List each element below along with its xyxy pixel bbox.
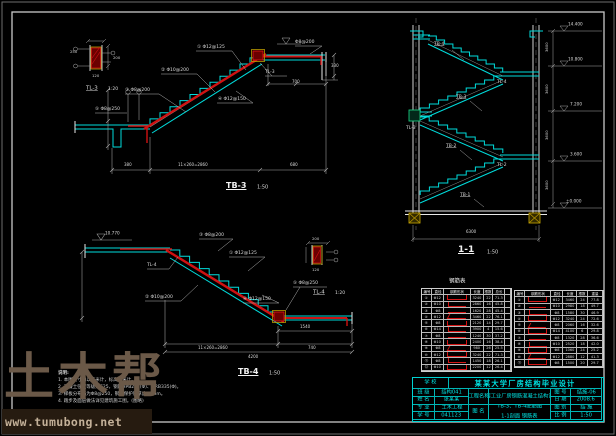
rebar-table-right: 编号钢筋形状直径长度根数重量①Φ1234602477.8②Φ1029801849… <box>514 290 604 368</box>
table-cell: Φ10 <box>432 365 444 371</box>
table-cell: 12 <box>484 365 493 371</box>
rebar-shape-glyph <box>447 352 467 357</box>
rebar-shape-glyph <box>529 342 547 347</box>
anno-label: 680 <box>290 163 298 167</box>
anno-label: 1:20 <box>335 291 345 296</box>
titleblock-value: 结 施 <box>571 405 602 413</box>
table-cell <box>525 360 551 366</box>
anno-label: 11×260=2860 <box>198 346 228 350</box>
tl3-beam-section <box>74 39 116 71</box>
anno-label: 11×260=2860 <box>178 163 208 167</box>
table-cell: ⑫ <box>422 365 432 371</box>
anno-label: Φ8@200 <box>295 40 315 45</box>
tl4-beam-section <box>306 241 338 265</box>
rebar-shape-glyph <box>447 321 467 326</box>
anno-label: 14.400 <box>568 22 583 26</box>
anno-label: TB-3 <box>456 95 466 100</box>
titleblock-label: 姓 名 <box>413 397 435 405</box>
anno-label: 1:20 <box>108 87 118 92</box>
cad-drawing-sheet: TB-31:50TL-31:20① Φ12@125② Φ10@200③ Φ8@2… <box>0 0 616 436</box>
anno-label: 1:50 <box>257 185 268 190</box>
section-title: 1-1 <box>458 246 474 255</box>
anno-label: 3600 <box>545 84 549 94</box>
table-cell <box>505 365 511 371</box>
table-cell: Φ8 <box>551 360 563 366</box>
table-cell: 20 <box>577 360 588 366</box>
titleblock-value: 土木工程 <box>435 405 469 413</box>
anno-label: TL-4 <box>497 80 507 85</box>
anno-label: 200 <box>312 237 319 241</box>
tl3-title: TL-3 <box>86 85 98 91</box>
anno-label: TB-1 <box>460 193 470 198</box>
anno-label: ④ Φ12@150 <box>243 297 271 302</box>
anno-label: TL-2 <box>497 163 507 168</box>
anno-label: TL-3 <box>265 70 275 75</box>
anno-label: TL-4 <box>147 263 157 268</box>
titleblock-label: 比 例 <box>551 412 571 420</box>
table-cell: 1500 <box>563 360 577 366</box>
rebar-shape-glyph <box>527 354 548 359</box>
anno-label: 700 <box>292 80 300 84</box>
rebar-shape-glyph <box>446 346 467 351</box>
rebar-shape-glyph <box>448 309 466 313</box>
anno-label: 120 <box>92 74 99 78</box>
anno-label: 10.800 <box>568 57 583 61</box>
anno-label: TL-3 <box>406 126 416 131</box>
anno-label: 3600 <box>545 42 549 52</box>
rebar-shape-glyph <box>529 304 546 308</box>
titleblock-value: 张某某 <box>435 397 469 405</box>
rebar-shape-glyph <box>528 329 547 334</box>
titleblock-value: 1:50 <box>571 412 602 420</box>
anno-label: ③ Φ8@200 <box>199 233 224 238</box>
rebar-shape-glyph <box>528 348 547 353</box>
anno-label: 6300 <box>466 230 476 234</box>
titleblock-value: 结施-06 <box>571 389 602 397</box>
titleblock-project-label: 工程名称 <box>469 389 489 405</box>
anno-label: ① Φ12@125 <box>197 45 225 50</box>
table-cell: 26.4 <box>493 365 505 371</box>
titleblock-drawing-value: TB-3、TB-4配筋图 1-1剖面 钢筋表 <box>489 405 551 421</box>
rebar-shape-glyph <box>447 365 467 370</box>
rebar-shape-glyph <box>448 358 467 363</box>
titleblock-school-label: 学 校 <box>413 378 449 389</box>
titleblock-title: 某某大学厂房结构毕业设计 <box>449 378 602 389</box>
anno-label: 1:50 <box>487 250 498 255</box>
tb3-title: TB-3 <box>226 182 246 190</box>
titleblock-label: 日 期 <box>551 397 571 405</box>
anno-label: 7.200 <box>570 102 582 106</box>
titleblock-label: 图 别 <box>551 405 571 413</box>
anno-label: ② Φ10@200 <box>161 68 189 73</box>
anno-label: ④ Φ12@150 <box>218 97 246 102</box>
anno-label: 10.770 <box>105 231 120 235</box>
anno-label: 3600 <box>545 130 549 140</box>
anno-label: 1:50 <box>269 371 280 376</box>
anno-label: 120 <box>312 268 319 272</box>
anno-label: 3.600 <box>570 152 582 156</box>
anno-label: 4200 <box>248 355 258 359</box>
anno-label: TB-4 <box>434 42 444 47</box>
anno-label: ① Φ12@125 <box>229 251 257 256</box>
titleblock-value: 041123 <box>435 412 469 420</box>
anno-label: ③ Φ8@200 <box>125 88 150 93</box>
titleblock-value: 结构041 <box>435 389 469 397</box>
rebar-shape-glyph <box>528 316 547 321</box>
anno-label: 740 <box>308 346 316 350</box>
anno-label: 330 <box>331 64 339 68</box>
watermark-url: www.tumubong.net <box>2 415 122 429</box>
anno-label: 250 <box>70 50 77 54</box>
table-row: ⑪Φ815002029.7 <box>515 360 603 366</box>
rebar-shape-glyph <box>528 360 547 365</box>
anno-label: 200 <box>113 56 120 60</box>
rebar-shape-glyph <box>448 327 467 332</box>
watermark-bar: www.tumubong.net <box>2 409 152 434</box>
anno-label: 380 <box>124 163 132 167</box>
rebar-shape-glyph <box>448 334 466 338</box>
anno-label: ±0.000 <box>566 199 582 203</box>
titleblock-label: 专 业 <box>413 405 435 413</box>
table-cell: 2200 <box>471 365 484 371</box>
rebar-shape-glyph <box>448 302 467 307</box>
watermark-brand: 土木帮 <box>4 352 166 402</box>
table-row: ⑫Φ1022001226.4 <box>422 365 511 371</box>
titleblock-label: 学 号 <box>413 412 435 420</box>
titleblock-label: 班 级 <box>413 389 435 397</box>
rebar-shape-glyph <box>446 314 467 319</box>
rebar-shape-glyph <box>528 297 547 302</box>
anno-label: 3600 <box>545 180 549 190</box>
table-cell: 29.7 <box>588 360 603 366</box>
title-block: 学 校 某某大学厂房结构毕业设计 班 级 结构041 姓 名 张某某 专 业 土… <box>412 377 604 422</box>
table-cell: ⑪ <box>515 360 525 366</box>
anno-label: TB-2 <box>446 144 456 149</box>
rebar-table-left: 编号直径钢筋形状长度根数总长①Φ1232402271.3②Φ1028601645… <box>421 288 512 372</box>
rebar-shape-glyph <box>447 295 467 300</box>
anno-label: ② Φ10@200 <box>145 295 173 300</box>
rebar-table-title: 钢筋表 <box>449 278 466 284</box>
titleblock-label: 图 号 <box>551 389 571 397</box>
table-cell <box>444 365 471 371</box>
anno-label: ⑤ Φ8@250 <box>293 281 318 286</box>
titleblock-project-value: 单层工业厂房钢筋混凝土结构设计 <box>489 389 551 405</box>
tl4-title: TL-4 <box>313 289 325 295</box>
rebar-shape-glyph <box>527 323 548 328</box>
anno-label: 1540 <box>300 325 310 329</box>
anno-label: ⑤ Φ8@250 <box>95 107 120 112</box>
rebar-shape-glyph <box>529 336 546 340</box>
titleblock-drawing-label: 图 名 <box>469 405 489 421</box>
titleblock-value: 2008.6 <box>571 397 602 405</box>
rebar-shape-glyph <box>529 310 547 315</box>
rebar-shape-glyph <box>447 340 467 345</box>
section-1-1 <box>405 18 602 242</box>
